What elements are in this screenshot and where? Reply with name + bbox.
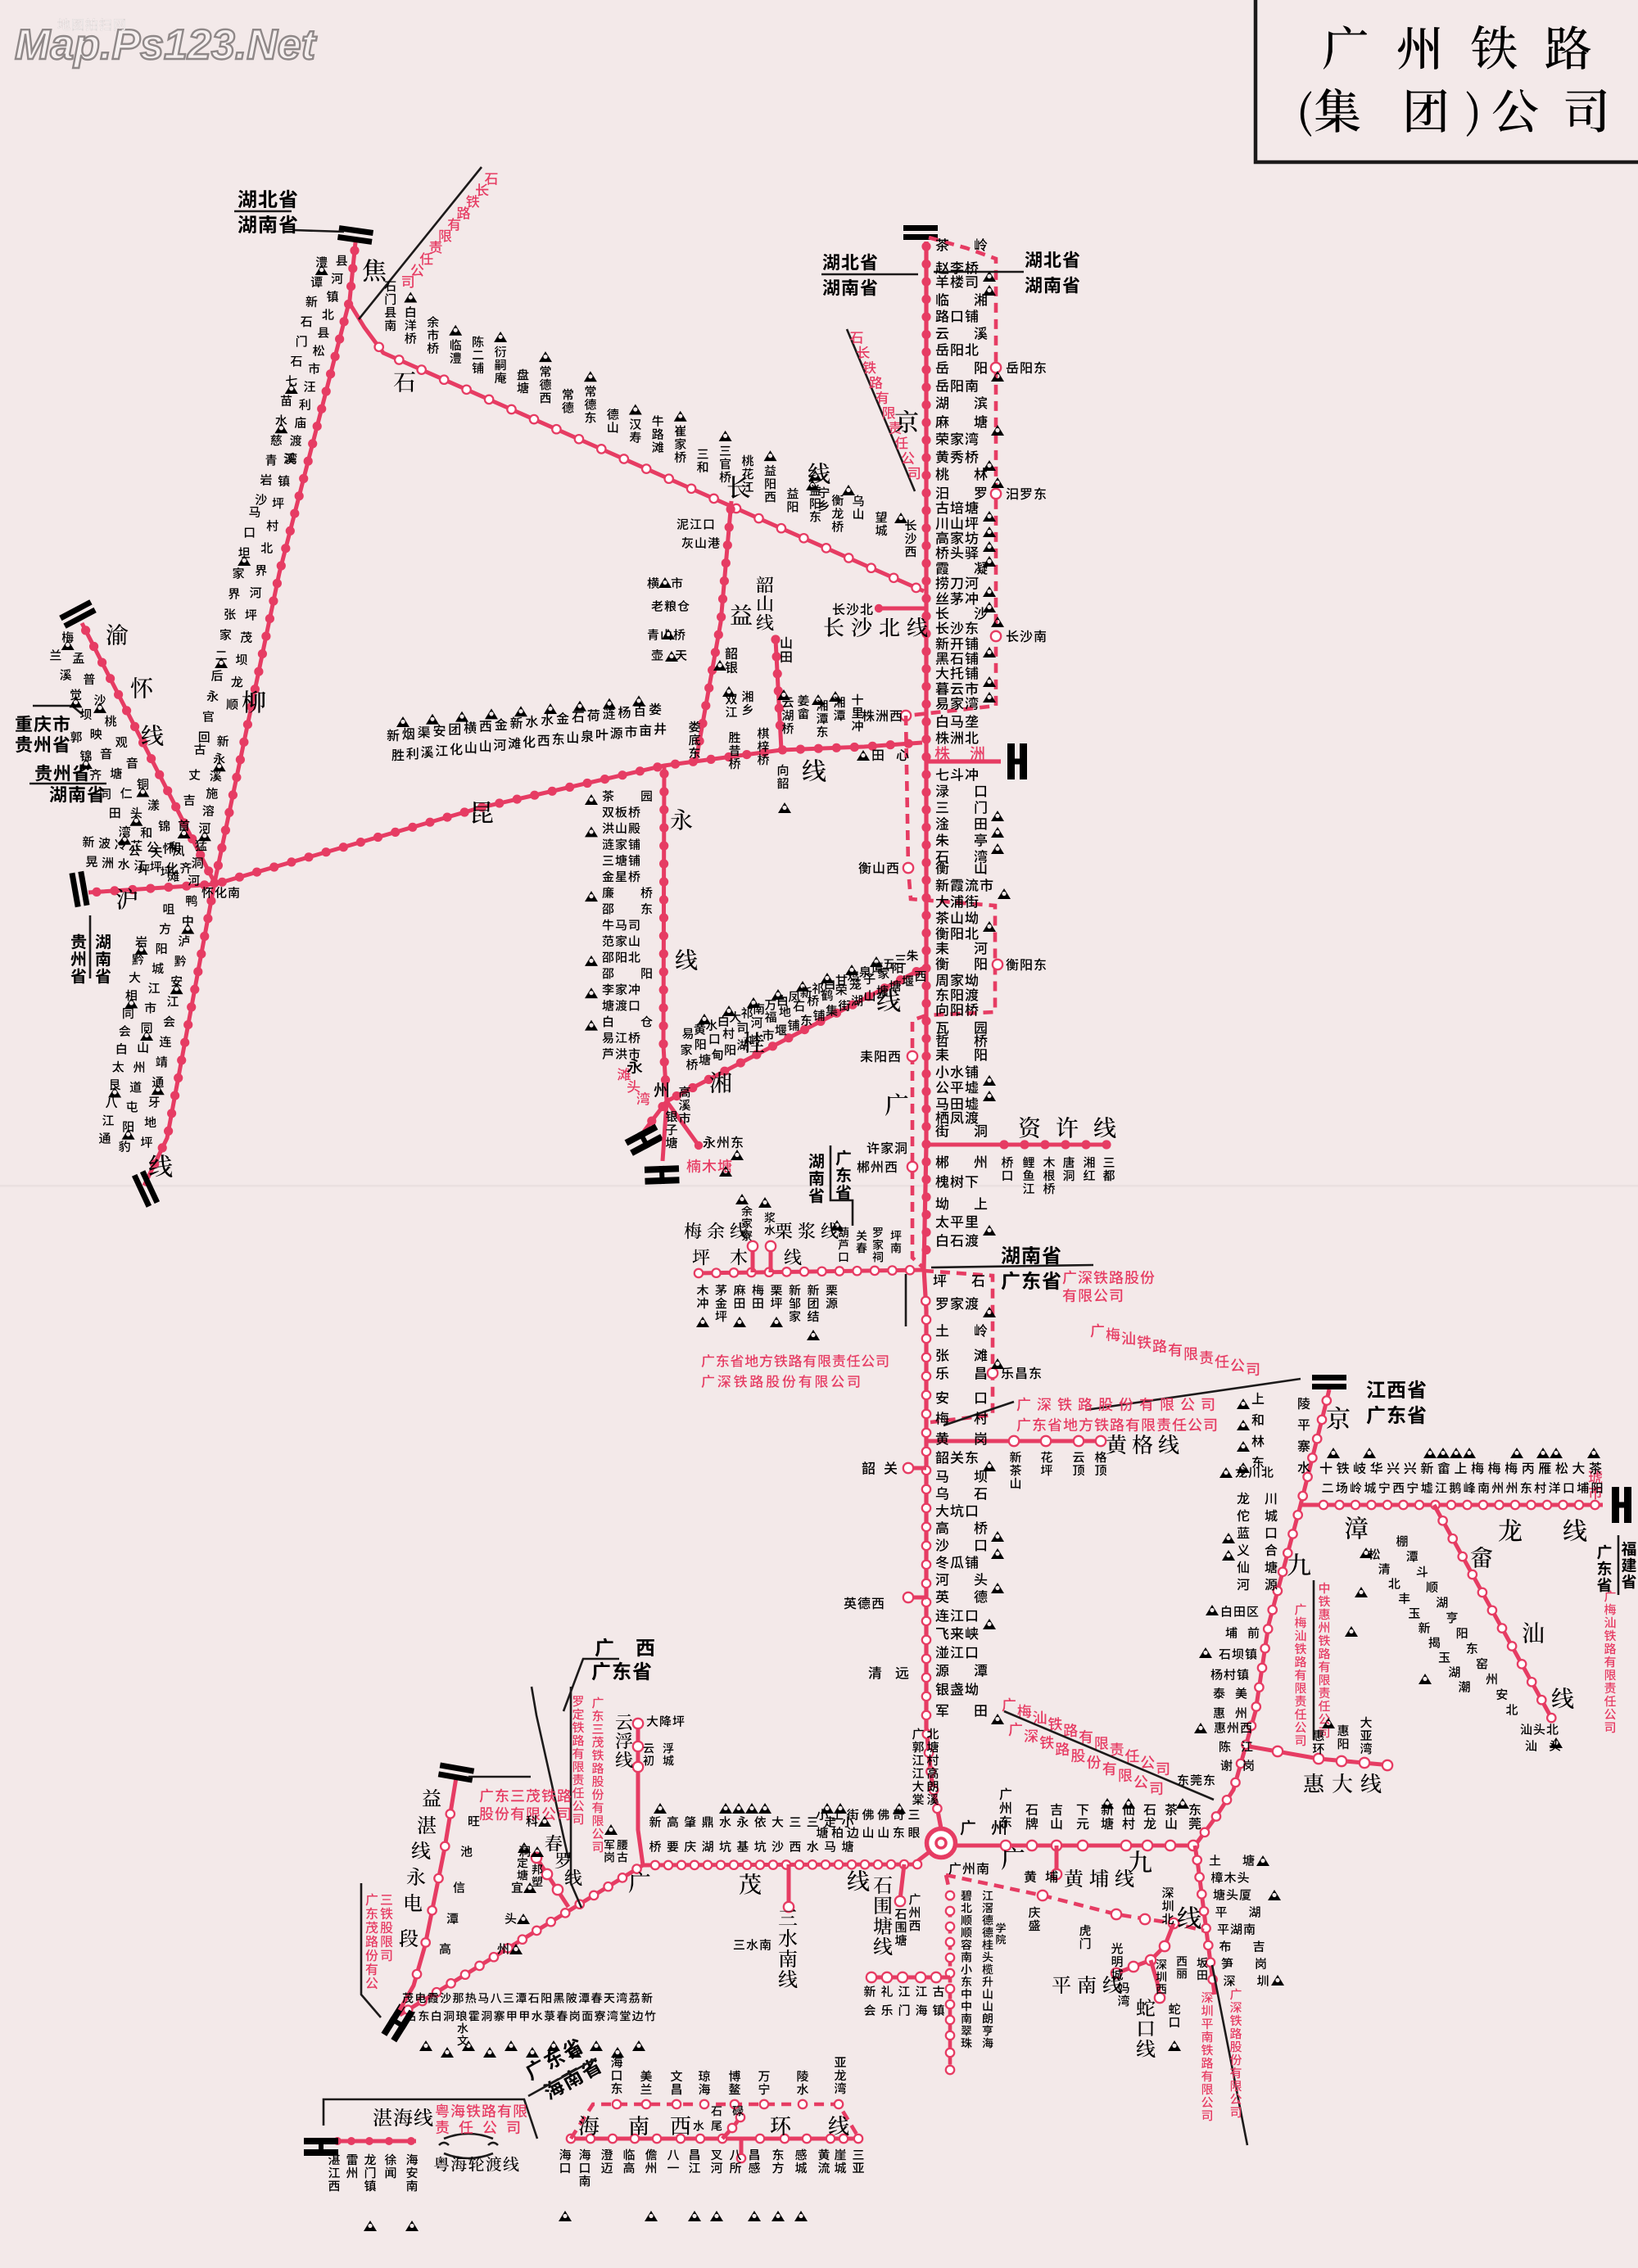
svg-text:Map.Ps123.Net: Map.Ps123.Net bbox=[15, 21, 318, 69]
